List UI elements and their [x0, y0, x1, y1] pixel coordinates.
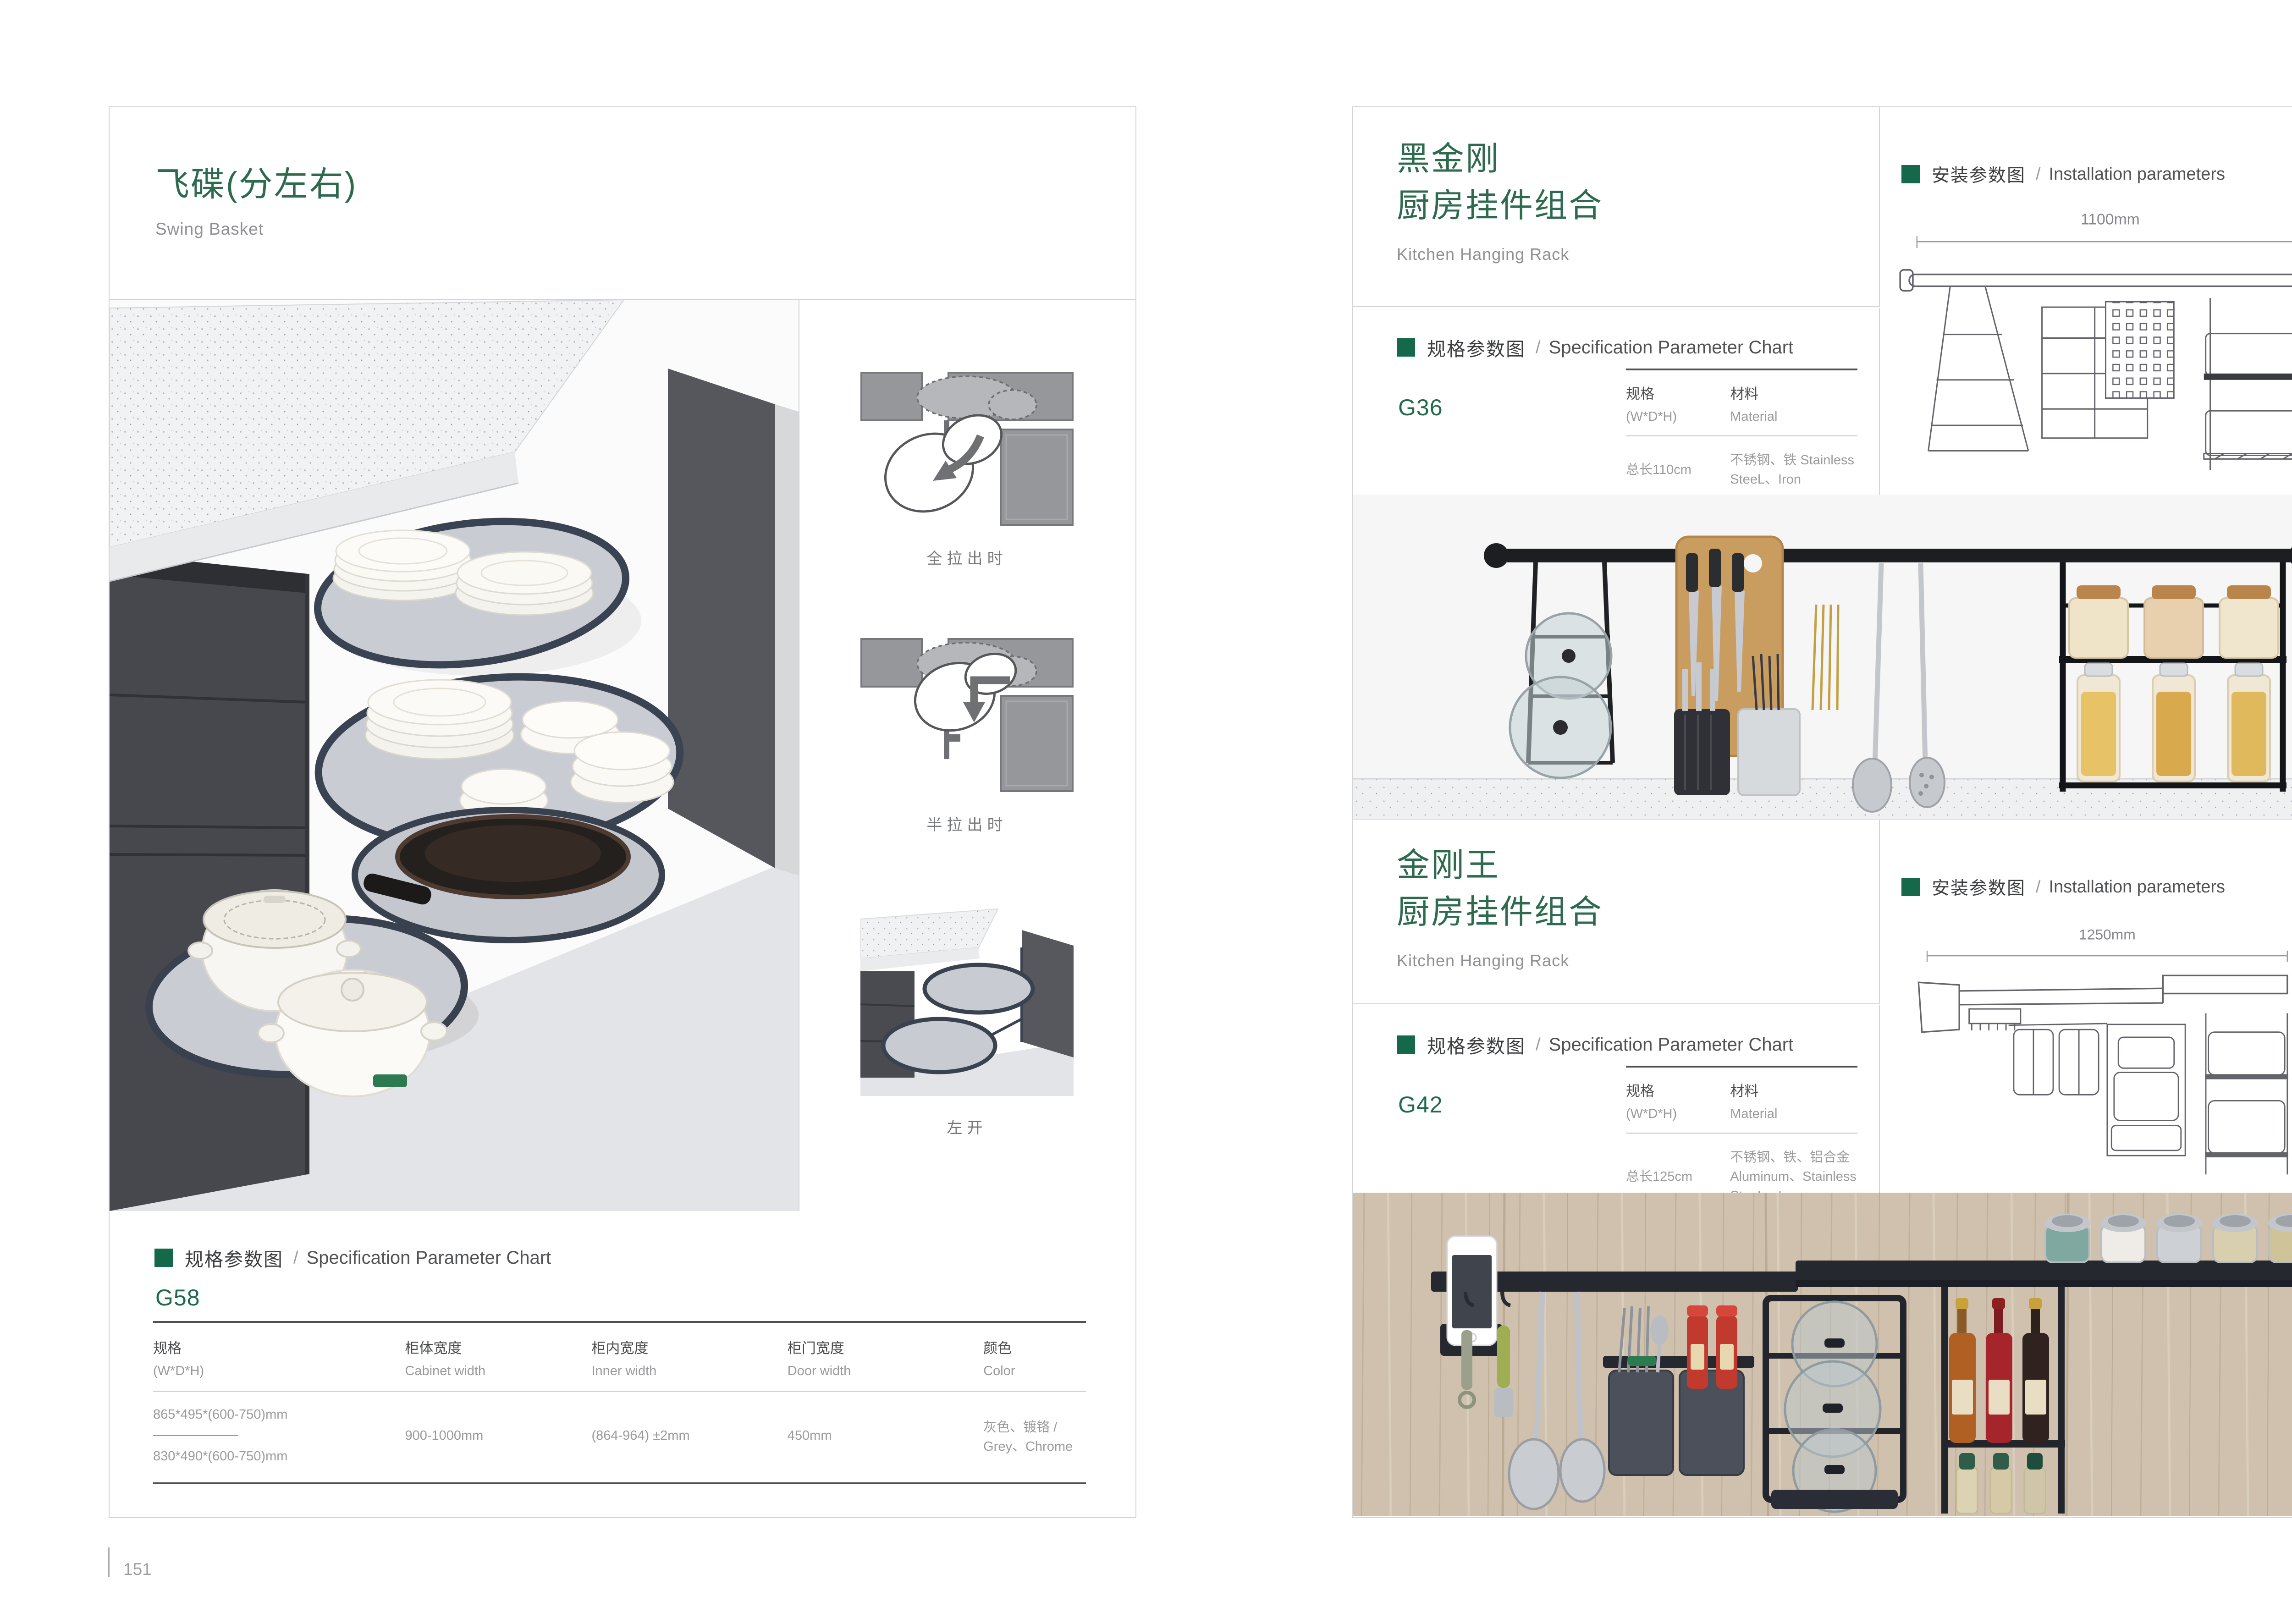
col-header-en: (W*D*H)	[1626, 409, 1730, 424]
figure-half-pullout: 半拉出时	[860, 637, 1074, 835]
dim-width-label: 1100mm	[2081, 211, 2140, 228]
col-header-cn: 颜色	[983, 1337, 1086, 1357]
plan-diagram-half-pullout	[860, 637, 1074, 793]
col-header-en: (W*D*H)	[153, 1364, 405, 1379]
g36-product-photo	[1353, 495, 2292, 820]
model-code: G42	[1398, 1091, 1443, 1118]
pasta-bottles-bottom	[2077, 663, 2270, 782]
col-header-en: Color	[983, 1364, 1086, 1379]
product-title-en: Kitchen Hanging Rack	[1397, 951, 1603, 970]
section-g42-title-cell: 金刚王 厨房挂件组合 Kitchen Hanging Rack	[1353, 820, 1880, 1004]
model-code: G36	[1398, 394, 1443, 421]
section-marker-icon	[1397, 338, 1415, 357]
lid-box-drawing	[2107, 1024, 2185, 1156]
utensil-cup-mesh	[1674, 709, 1730, 795]
col-header-en: Door width	[788, 1364, 983, 1379]
dim-width	[1927, 951, 2287, 962]
swing-basket-illustration	[110, 300, 799, 1211]
lid-rack-drawing	[1928, 286, 2028, 451]
product-title-cn: 金刚王	[1397, 842, 1603, 889]
spec-table-head: 规格 (W*D*H) 柜体宽度 Cabinet width 柜内宽度 Inner…	[153, 1323, 1086, 1392]
col-header-en: (W*D*H)	[1626, 1107, 1730, 1122]
page-right-panel: 黑金刚 厨房挂件组合 Kitchen Hanging Rack 规格参数图 / …	[1352, 106, 2292, 1518]
spec-header: 规格参数图 / Specification Parameter Chart	[154, 1244, 551, 1272]
door-width-value: 450mm	[788, 1428, 983, 1443]
section-g36-title-cell: 黑金刚 厨房挂件组合 Kitchen Hanging Rack	[1353, 107, 1880, 307]
spec-table: 规格 (W*D*H) 柜体宽度 Cabinet width 柜内宽度 Inner…	[153, 1321, 1086, 1484]
spec-table: 规格 (W*D*H) 材料 Material 总长110cm 不锈钢、铁 Sta…	[1626, 369, 1857, 504]
col-header-en: Material	[1730, 1107, 1857, 1122]
slash-separator: /	[1536, 1035, 1541, 1055]
utensil-cup-plastic	[1738, 709, 1800, 795]
spice-jars-top	[2069, 585, 2278, 658]
col-header-cn: 材料	[1730, 382, 1857, 403]
figure-caption: 左开	[860, 1115, 1074, 1138]
section-marker-icon	[154, 1249, 173, 1267]
plate-stack-3	[365, 680, 514, 759]
slash-separator: /	[2036, 165, 2041, 184]
slash-separator: /	[2036, 877, 2041, 897]
col-header-cn: 规格	[153, 1337, 405, 1357]
plan-diagram-full-pullout	[860, 371, 1074, 527]
section-g42-spec-cell: 规格参数图 / Specification Parameter Chart G4…	[1353, 1005, 1880, 1193]
diagram-column: 全拉出时	[799, 300, 1135, 1211]
value-divider	[153, 1435, 238, 1436]
product-title-cn: 黑金刚	[1397, 136, 1603, 182]
spec-header-en: Specification Parameter Chart	[307, 1248, 551, 1268]
install-header: 安装参数图 / Installation parameters	[1901, 874, 2225, 900]
length-value: 总长110cm	[1626, 459, 1730, 478]
inner-width-value: (864-964) ±2mm	[591, 1428, 787, 1443]
two-tier-rack-drawing	[2204, 298, 2292, 470]
figure-caption: 半拉出时	[860, 812, 1074, 835]
right-wall-panel	[668, 369, 775, 868]
top-shelf-jars	[2044, 1214, 2292, 1262]
page-number-left: 151	[108, 1547, 152, 1577]
swing-basket-photo	[110, 300, 799, 1211]
cabinet-left	[110, 553, 309, 1211]
col-header-cn: 规格	[1626, 382, 1730, 403]
dim-width-label: 1250mm	[2079, 926, 2136, 943]
brand-chip	[1628, 1356, 1656, 1366]
spice-rack	[2059, 562, 2286, 792]
section-g36-install-cell: 安装参数图 / Installation parameters 1100mm	[1881, 107, 2292, 495]
product-title-cn: 飞碟(分左右)	[155, 157, 357, 206]
slash-separator: /	[293, 1248, 298, 1268]
spec-table-row: 865*495*(600-750)mm 830*490*(600-750)mm …	[153, 1392, 1086, 1482]
figure-left-open: 左开	[860, 903, 1074, 1138]
mini-tray-top	[925, 965, 1033, 1013]
product-title-cn: 厨房挂件组合	[1397, 182, 1603, 229]
g42-product-photo	[1353, 1193, 2292, 1516]
col-header-cn: 柜门宽度	[788, 1337, 983, 1357]
product-title-cn: 厨房挂件组合	[1397, 889, 1603, 936]
spec-header-cn: 规格参数图	[185, 1244, 283, 1272]
g36-photo-illustration	[1353, 495, 2292, 819]
page-left-panel: 飞碟(分左右) Swing Basket	[109, 106, 1136, 1518]
spec-header: 规格参数图 / Specification Parameter Chart	[1397, 334, 1793, 361]
material-value: 不锈钢、铁 Stainless SteeL、Iron	[1730, 449, 1857, 488]
dim-width	[1917, 236, 2292, 248]
product-title-en: Swing Basket	[155, 220, 357, 239]
cabinet-width-value: 900-1000mm	[405, 1428, 591, 1443]
slash-separator: /	[1536, 338, 1541, 358]
figure-caption: 全拉出时	[860, 546, 1074, 568]
mini-tray-bottom	[883, 1019, 995, 1072]
hook-strip-drawing	[1969, 1009, 2021, 1030]
spec-value-a: 865*495*(600-750)mm	[153, 1407, 405, 1422]
bottle-rack-drawing	[2205, 1013, 2288, 1175]
product-title-en: Kitchen Hanging Rack	[1397, 245, 1603, 264]
install-header: 安装参数图 / Installation parameters	[1901, 161, 2225, 187]
g42-photo-illustration	[1353, 1193, 2292, 1516]
install-drawing-g36: 1100mm	[1890, 198, 2292, 480]
section-marker-icon	[1901, 878, 1920, 896]
spice-bottles-small	[1956, 1453, 2045, 1514]
rail-drawing	[1900, 270, 2292, 291]
render-left-open	[860, 903, 1074, 1096]
color-value: 灰色、镀铬 / Grey、Chrome	[983, 1416, 1086, 1455]
spec-value-b: 830*490*(600-750)mm	[153, 1449, 405, 1464]
col-header-en: Cabinet width	[405, 1364, 591, 1379]
col-header-en: Inner width	[591, 1364, 787, 1379]
col-header-cn: 柜体宽度	[405, 1337, 591, 1357]
col-header-cn: 规格	[1626, 1079, 1730, 1100]
col-header-en: Material	[1730, 409, 1857, 424]
hook-basket-drawing	[2042, 302, 2174, 438]
section-g36-spec-cell: 规格参数图 / Specification Parameter Chart G3…	[1353, 308, 1880, 495]
install-drawing-g42: 1250mm	[1890, 917, 2292, 1183]
col-header-cn: 材料	[1730, 1079, 1857, 1100]
catalog-spread: 飞碟(分左右) Swing Basket	[0, 0, 2292, 1624]
sauce-bottles-tall	[1949, 1298, 2049, 1443]
model-code: G58	[155, 1284, 200, 1311]
section-marker-icon	[1397, 1035, 1415, 1054]
spec-section-g58: 规格参数图 / Specification Parameter Chart G5…	[110, 1211, 1135, 1517]
page-number-bar	[108, 1547, 110, 1577]
product-title-block: 飞碟(分左右) Swing Basket	[155, 157, 357, 239]
section-marker-icon	[1901, 165, 1920, 183]
figure-full-pullout: 全拉出时	[860, 371, 1074, 568]
spec-header: 规格参数图 / Specification Parameter Chart	[1397, 1031, 1793, 1058]
cups-drawing	[2009, 1024, 2107, 1095]
plate-stack-2	[456, 552, 593, 615]
section-g42-install-cell: 安装参数图 / Installation parameters 1250mm	[1881, 820, 2292, 1193]
plate-stack-1	[333, 530, 473, 600]
brand-chip	[373, 1074, 407, 1087]
length-value: 总长125cm	[1626, 1166, 1730, 1185]
col-header-cn: 柜内宽度	[591, 1337, 787, 1357]
